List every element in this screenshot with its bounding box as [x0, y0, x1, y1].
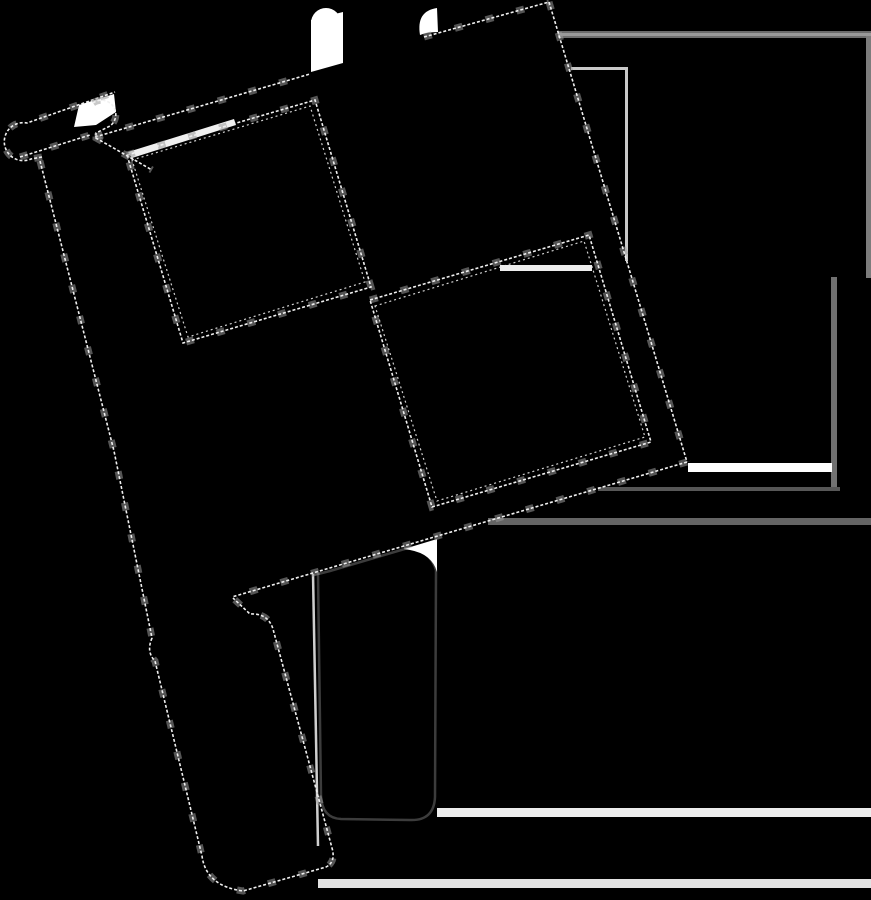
icon-image-canvas [0, 0, 871, 900]
page-rule-top-dark [558, 31, 871, 33]
page-rule-bottom [488, 518, 871, 525]
strap-right [318, 548, 436, 820]
checker-edge-streak [500, 265, 592, 271]
page-rule-inner-h [598, 487, 840, 491]
page-rule-top-shade [558, 36, 871, 38]
checkered-flag-icon [0, 0, 871, 900]
page-stripe-upper [437, 808, 871, 817]
guide-line-horizontal [571, 67, 628, 70]
page-rule-top-light [558, 33, 871, 36]
page-stripe-lower [318, 879, 871, 888]
clip-gap-tail [311, 12, 343, 72]
white-bar-right [688, 463, 832, 472]
guide-line-vertical [625, 68, 628, 261]
page-rule-right-upper [866, 36, 871, 278]
page-rule-right-inner [831, 277, 837, 490]
